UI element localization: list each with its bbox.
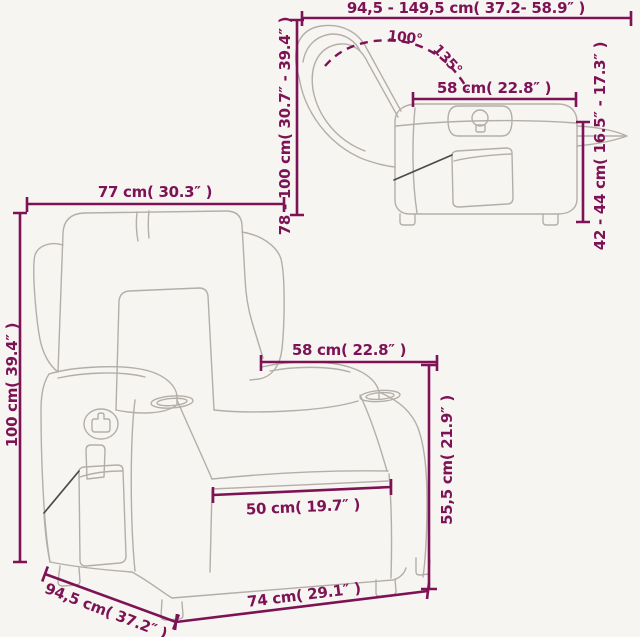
front-height-label: 100 cm( 39.4″ ) — [3, 323, 21, 447]
side-seat-depth-label: 58 cm( 22.8″ ) — [437, 79, 551, 97]
front-view-chair-drawing — [34, 211, 430, 620]
side-height-range-label: 78 - 100 cm( 30.7″ - 39.4″ ) — [276, 17, 294, 235]
front-seat-back-height-label: 55,5 cm( 21.9″ ) — [438, 395, 456, 525]
front-width-label: 77 cm( 30.3″ ) — [98, 183, 212, 201]
side-view-chair-drawing — [296, 25, 627, 225]
side-pocket-callout-line — [394, 155, 452, 180]
front-pocket-callout-line — [44, 471, 79, 513]
side-width-range-label: 94,5 - 149,5 cm( 37.2- 58.9″ ) — [347, 0, 585, 17]
side-seat-height-range-label: 42 - 44 cm( 16.5″ - 17.3″ ) — [591, 42, 609, 250]
product-dimension-diagram: 94,5 - 149,5 cm( 37.2- 58.9″ ) 78 - 100 … — [0, 0, 640, 637]
front-armrest-span-label: 58 cm( 22.8″ ) — [292, 341, 406, 359]
